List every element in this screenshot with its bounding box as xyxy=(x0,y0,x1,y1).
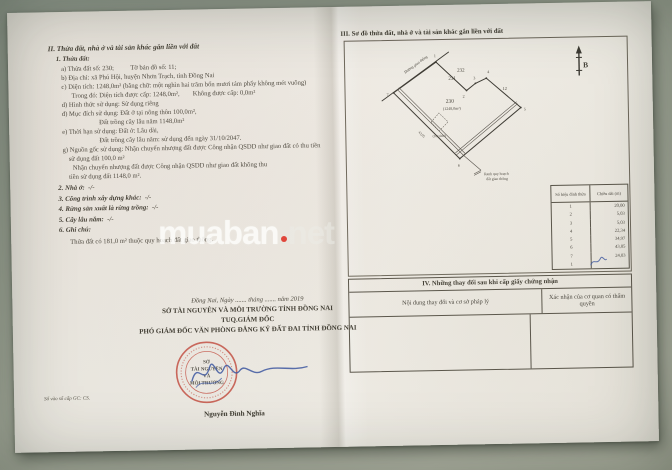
numbered-items: 2. Nhà ở: -/- 3. Công trình xây dựng khá… xyxy=(50,179,345,237)
section-4-col1-body xyxy=(350,314,532,371)
parcel-230-area-label: (1248,0m²) xyxy=(443,106,462,112)
planning-boundary-line xyxy=(397,85,519,171)
section-4-col1-header: Nội dung thay đổi và cơ sở pháp lý xyxy=(349,289,543,317)
vertex-length-table: Số hiệu đỉnh thửa Chiều dài (m) 120,00 2… xyxy=(550,184,630,270)
section-3-title: III. Sơ đồ thửa đất, nhà ở và tài sản kh… xyxy=(340,28,503,38)
legend: Ranh quy hoạch đất giao thông xyxy=(474,170,509,182)
vertex-7: 7 xyxy=(387,92,389,97)
table-header-length: Chiều dài (m) xyxy=(590,185,627,202)
road-label: Đường giao thông xyxy=(403,55,429,75)
legend-line1: Ranh quy hoạch xyxy=(484,172,509,176)
section-4-col2-header: Xác nhận của cơ quan có thẩm quyền xyxy=(543,288,632,314)
parcel-231-label: 231 xyxy=(448,77,456,82)
signature-block: Đồng Nai, Ngày ....... tháng ....... năm… xyxy=(112,293,383,338)
road-line xyxy=(381,52,450,101)
edge-67-length-label: 43,05 xyxy=(417,130,426,139)
parcel-details: a) Thửa đất số: 230; Tờ bản đồ số: 11; b… xyxy=(48,60,344,182)
parcel-232-label: 232 xyxy=(457,69,465,74)
table-header-row: Số hiệu đỉnh thửa Chiều dài (m) xyxy=(551,185,627,203)
vertex-6: 6 xyxy=(458,163,460,168)
signature-ink-icon xyxy=(181,345,314,399)
north-arrow-icon: B xyxy=(576,45,589,75)
handwritten-signature xyxy=(181,345,314,399)
legend-line2: đất giao thông xyxy=(486,177,508,181)
section-4-empty-body xyxy=(350,313,633,372)
vertex-1: 1 xyxy=(434,53,436,58)
photo-of-land-certificate: II. Thửa đất, nhà ở và tài sản khác gắn … xyxy=(0,0,672,470)
section-2-block: II. Thửa đất, nhà ở và tài sản khác gắn … xyxy=(48,40,346,247)
pen-mark-icon xyxy=(589,255,609,268)
section-4-box: IV. Những thay đổi sau khi cấp giấy chứn… xyxy=(348,274,634,373)
section-4-col2-body xyxy=(531,313,633,369)
signer-name-wrap: Nguyễn Đình Nghĩa xyxy=(144,401,324,422)
vertex-4: 4 xyxy=(487,69,489,74)
vertex-2: 2 xyxy=(463,94,465,99)
certificate-paper: II. Thửa đất, nhà ở và tài sản khác gắn … xyxy=(7,1,659,453)
table-header-vertex: Số hiệu đỉnh thửa xyxy=(551,185,590,202)
vertex-5: 5 xyxy=(524,106,526,111)
signer-name: Nguyễn Đình Nghĩa xyxy=(204,409,265,418)
book-entry-footnote: Số vào sổ cấp GC: CS. xyxy=(44,396,90,402)
north-label: B xyxy=(583,60,588,69)
vertex-3: 3 xyxy=(473,75,475,80)
edge-45-label: 12 xyxy=(502,86,506,91)
parcel-230-label: 230 xyxy=(446,99,455,105)
cadastral-diagram-box: B Đường giao thông (181,0m²) xyxy=(344,36,632,277)
